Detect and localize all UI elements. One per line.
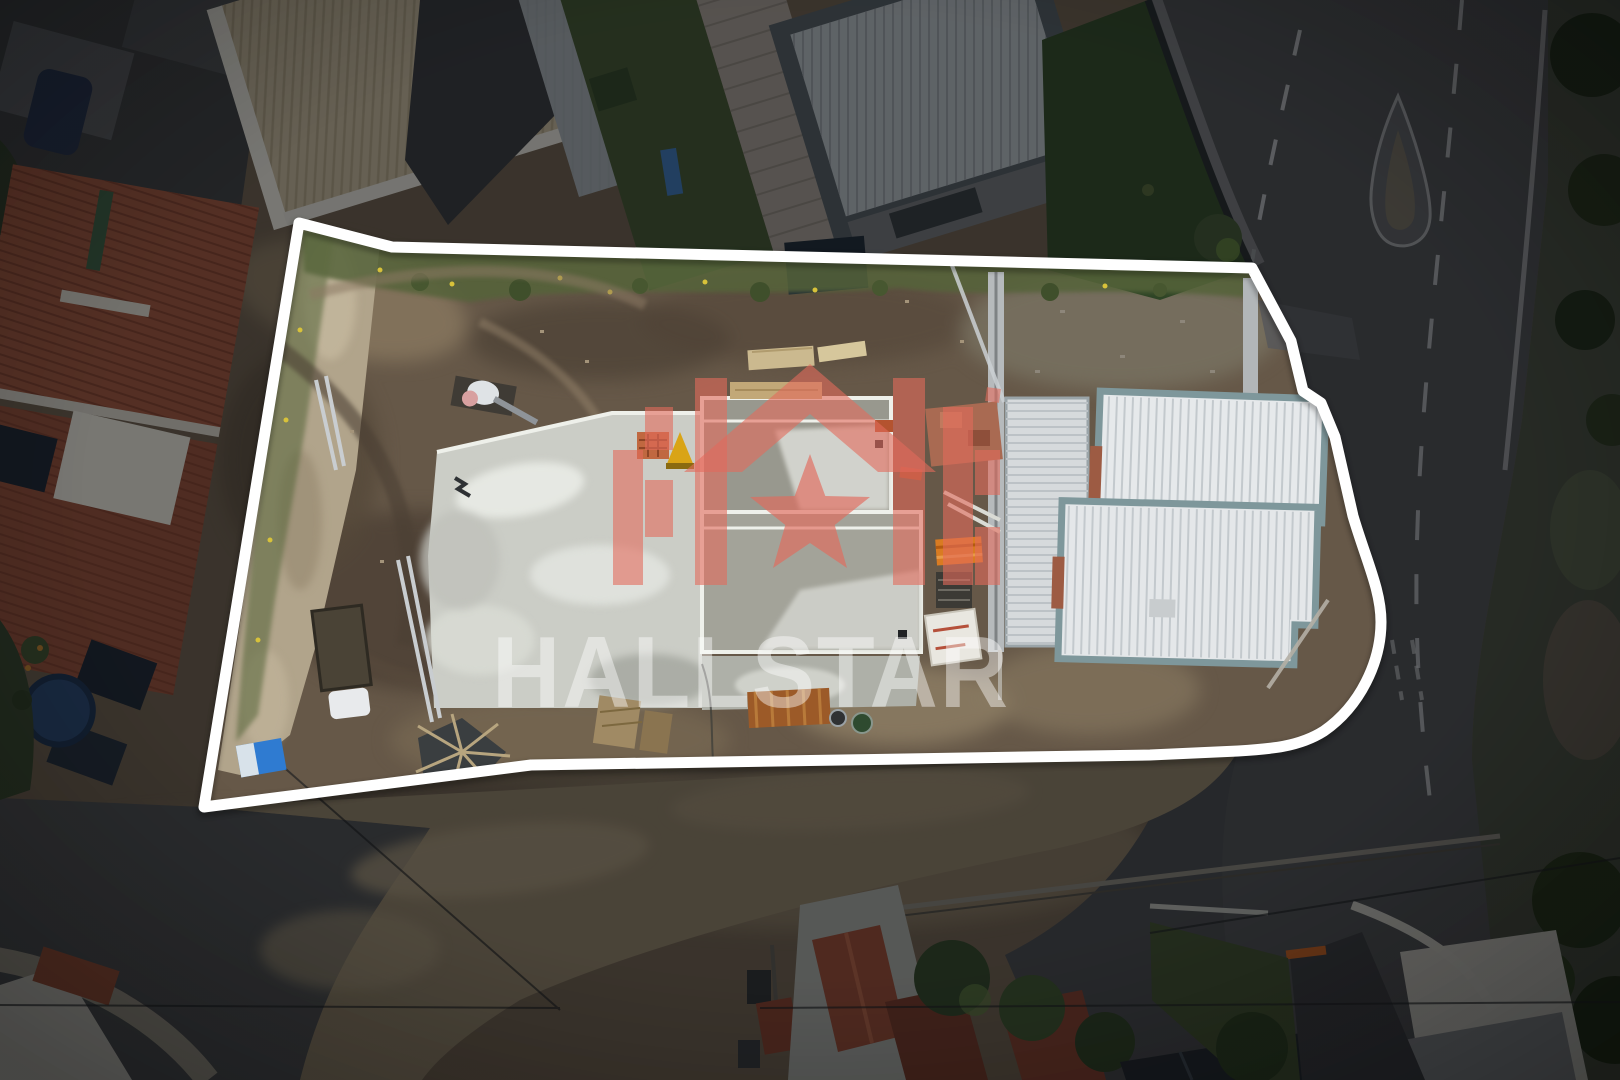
aerial-photo: HALLSTAR xyxy=(0,0,1620,1080)
scene: HALLSTAR xyxy=(0,0,1620,1080)
watermark-text: HALLSTAR xyxy=(492,617,1010,729)
